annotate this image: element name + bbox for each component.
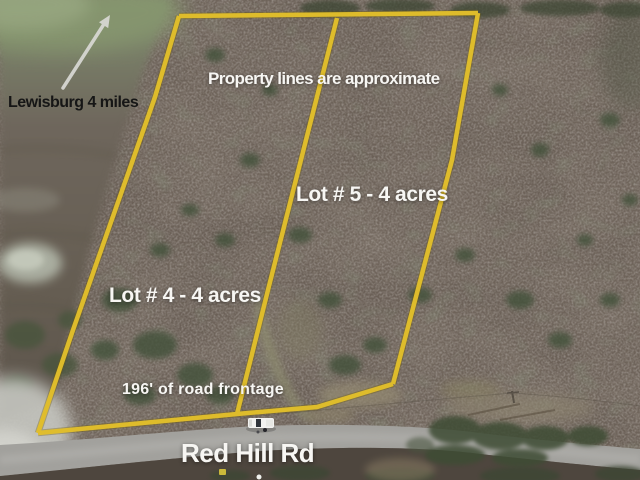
lewisburg-distance-label: Lewisburg 4 miles <box>8 94 138 112</box>
road-name-label: Red Hill Rd <box>181 439 314 468</box>
person <box>263 428 267 432</box>
boundary-top <box>179 13 478 16</box>
lot-5-label: Lot # 5 - 4 acres <box>296 183 448 206</box>
road-frontage-label: 196' of road frontage <box>122 381 284 399</box>
property-lines-disclaimer: Property lines are approximate <box>208 70 439 89</box>
mailbox <box>219 469 226 475</box>
pickup-truck <box>246 418 276 434</box>
annotated-aerial-photo: Lewisburg 4 miles Property lines are app… <box>0 0 640 480</box>
clipped-text-fragment <box>257 475 262 480</box>
lot-4-label: Lot # 4 - 4 acres <box>109 284 261 307</box>
